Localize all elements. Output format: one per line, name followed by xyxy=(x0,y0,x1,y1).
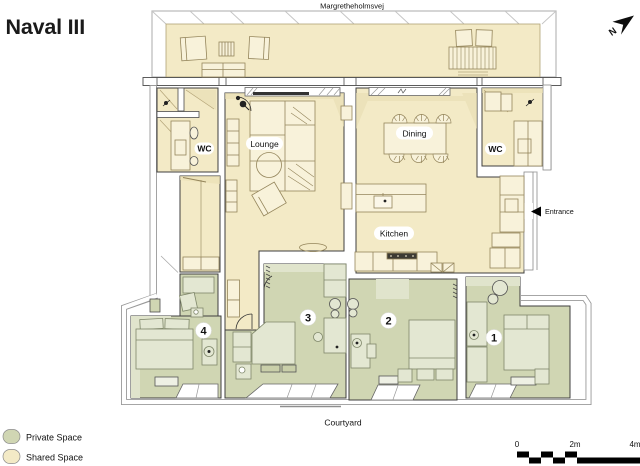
svg-text:Entrance: Entrance xyxy=(545,207,574,216)
svg-text:1: 1 xyxy=(491,333,497,345)
svg-text:4m: 4m xyxy=(629,440,640,449)
svg-text:0: 0 xyxy=(515,440,520,449)
svg-text:Dining: Dining xyxy=(402,129,426,139)
svg-text:2m: 2m xyxy=(569,440,580,449)
svg-text:Courtyard: Courtyard xyxy=(324,418,362,428)
svg-text:Margretheholmsvej: Margretheholmsvej xyxy=(320,2,384,11)
svg-text:WC: WC xyxy=(197,144,211,154)
svg-text:3: 3 xyxy=(305,313,311,325)
svg-text:Lounge: Lounge xyxy=(250,139,279,149)
svg-text:4: 4 xyxy=(200,326,207,338)
svg-text:WC: WC xyxy=(488,144,502,154)
svg-text:2: 2 xyxy=(385,316,391,328)
svg-text:Shared Space: Shared Space xyxy=(26,453,83,463)
svg-text:Kitchen: Kitchen xyxy=(380,229,409,239)
svg-text:Private Space: Private Space xyxy=(26,433,82,443)
svg-text:Naval III: Naval III xyxy=(6,15,85,39)
